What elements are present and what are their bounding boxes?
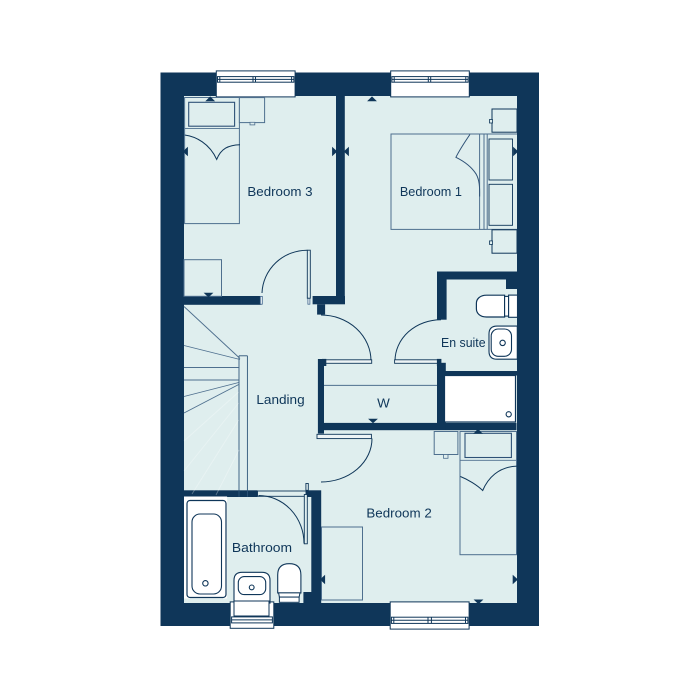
svg-text:En suite: En suite bbox=[441, 335, 486, 350]
svg-text:Landing: Landing bbox=[256, 392, 304, 407]
svg-text:Bedroom 2: Bedroom 2 bbox=[366, 506, 431, 521]
svg-text:W: W bbox=[377, 396, 391, 411]
svg-text:Bedroom 1: Bedroom 1 bbox=[400, 184, 462, 199]
svg-text:Bedroom 3: Bedroom 3 bbox=[247, 184, 312, 199]
svg-text:Bathroom: Bathroom bbox=[232, 540, 292, 555]
